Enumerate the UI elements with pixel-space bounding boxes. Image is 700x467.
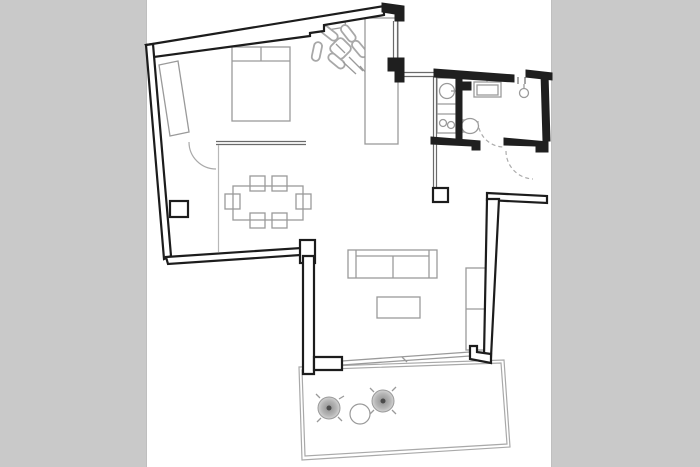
right-matte [551,0,700,467]
wall-living-left [303,256,314,374]
wall-shower-right [541,73,550,141]
wall-bath-partition [456,77,462,141]
hall-column [433,188,448,202]
chair [272,176,287,191]
round-chair [370,387,396,414]
toilet [462,119,479,134]
coffee-table [377,297,420,318]
wall-left-notch [170,201,188,217]
round-table [350,404,370,424]
wall-bath-partition-notch [462,82,471,90]
chair [250,176,265,191]
background [0,0,700,467]
wall-foot-left [314,357,342,370]
left-matte [0,0,146,467]
floor-plan-svg [0,0,700,467]
floor-plan-image [0,0,700,467]
